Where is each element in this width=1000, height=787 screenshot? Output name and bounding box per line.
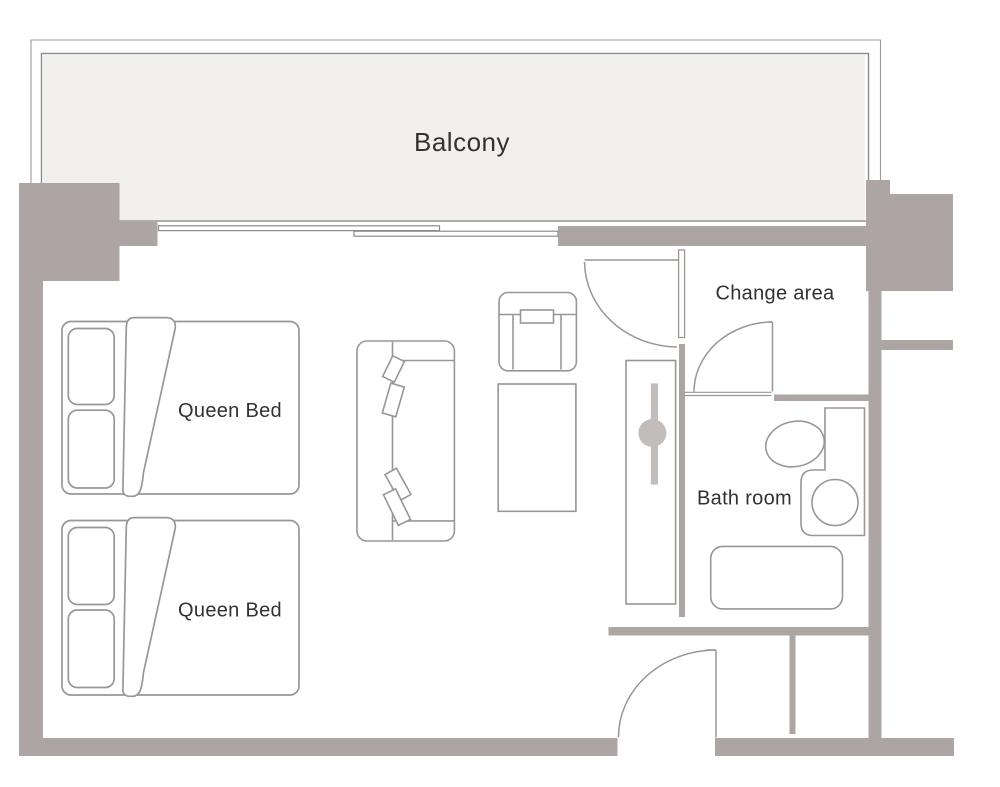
- svg-text:Bath room: Bath room: [697, 488, 792, 510]
- svg-text:Balcony: Balcony: [414, 127, 510, 157]
- svg-text:Change area: Change area: [716, 283, 836, 305]
- svg-text:Queen Bed: Queen Bed: [178, 400, 282, 422]
- svg-text:Queen Bed: Queen Bed: [178, 600, 282, 622]
